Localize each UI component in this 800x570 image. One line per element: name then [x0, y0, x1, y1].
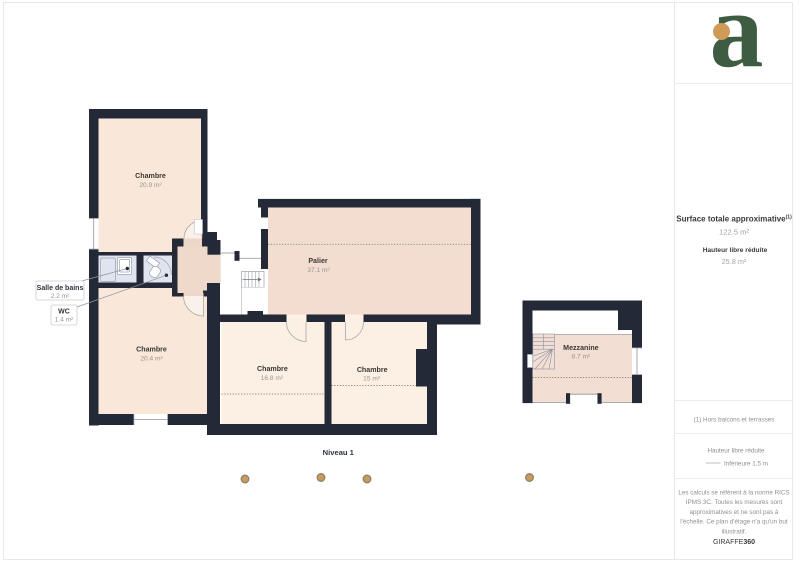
svg-text:illustratif.: illustratif. [722, 528, 747, 535]
svg-text:2.2 m²: 2.2 m² [51, 293, 70, 300]
svg-text:15 m²: 15 m² [363, 376, 381, 383]
svg-text:Chambre: Chambre [135, 172, 166, 180]
svg-text:8.7 m²: 8.7 m² [572, 353, 591, 360]
svg-text:Surface totale approximative(1: Surface totale approximative(1) [676, 215, 792, 224]
svg-text:GIRAFFE360: GIRAFFE360 [713, 539, 755, 546]
svg-text:l'échelle. Ce plan d'étage n'a: l'échelle. Ce plan d'étage n'a qu'un but [680, 519, 788, 526]
svg-text:Inférieure 1.5 m: Inférieure 1.5 m [724, 460, 768, 467]
svg-text:Niveau 1: Niveau 1 [323, 448, 355, 457]
svg-text:20.9 m²: 20.9 m² [139, 182, 162, 189]
svg-text:(1) Hors balcons et terrasses: (1) Hors balcons et terrasses [694, 417, 775, 424]
svg-text:Hauteur libre réduite: Hauteur libre réduite [707, 448, 765, 455]
svg-text:WC: WC [58, 309, 70, 316]
svg-text:37.1 m²: 37.1 m² [307, 267, 330, 274]
svg-text:25.8 m²: 25.8 m² [722, 257, 747, 266]
svg-text:Salle de bains: Salle de bains [37, 285, 84, 292]
svg-text:122.5 m²: 122.5 m² [719, 228, 749, 237]
svg-text:Mezzanine: Mezzanine [563, 344, 599, 352]
svg-text:Palier: Palier [308, 257, 328, 265]
svg-text:Chambre: Chambre [136, 346, 167, 354]
svg-text:approximatives et ne sont pas: approximatives et ne sont pas à [690, 509, 779, 516]
svg-text:a: a [710, 0, 764, 90]
svg-text:Hauteur libre réduite: Hauteur libre réduite [703, 247, 768, 254]
svg-text:IPMS 3C. Toutes les mesures so: IPMS 3C. Toutes les mesures sont [686, 499, 783, 506]
svg-text:1.4 m²: 1.4 m² [55, 317, 74, 324]
svg-text:Chambre: Chambre [357, 366, 388, 374]
svg-text:Chambre: Chambre [257, 365, 288, 373]
svg-text:16.8 m²: 16.8 m² [261, 375, 284, 382]
svg-text:20.4 m²: 20.4 m² [140, 356, 163, 363]
svg-text:Les calculs se réfèrent à la n: Les calculs se réfèrent à la norme RICS [678, 490, 789, 497]
